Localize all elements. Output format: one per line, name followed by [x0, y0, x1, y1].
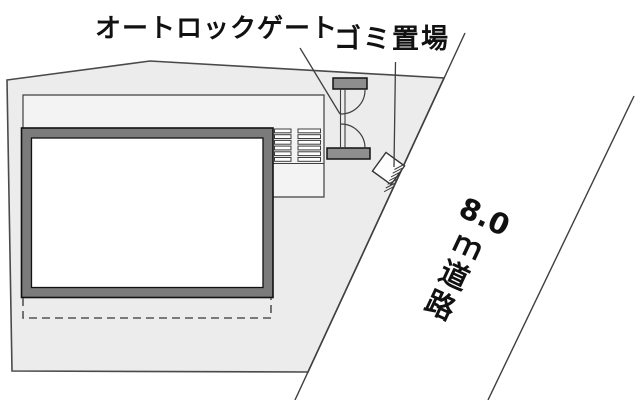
building-interior — [32, 138, 264, 288]
site-plan-svg — [0, 0, 640, 400]
gate-bottom-bar — [327, 148, 370, 159]
stair-step — [298, 129, 321, 133]
stair-step — [275, 135, 292, 139]
stair-step — [298, 146, 321, 150]
stair-step — [275, 146, 292, 150]
gate-top-bar — [333, 78, 367, 89]
stair-step — [298, 152, 321, 156]
stair-step — [275, 158, 292, 162]
road-right-edge — [488, 96, 634, 400]
stair-step — [298, 140, 321, 144]
stair-step — [275, 152, 292, 156]
stair-step — [275, 129, 292, 133]
site-plan-canvas: オートロックゲート ゴミ置場 8.0 ｍ 道 路 — [0, 0, 640, 400]
stair-step — [275, 140, 292, 144]
stair-step — [298, 135, 321, 139]
label-autolock-gate: オートロックゲート — [95, 14, 338, 45]
stair-step — [298, 158, 321, 162]
label-garbage-area: ゴミ置場 — [334, 24, 450, 56]
